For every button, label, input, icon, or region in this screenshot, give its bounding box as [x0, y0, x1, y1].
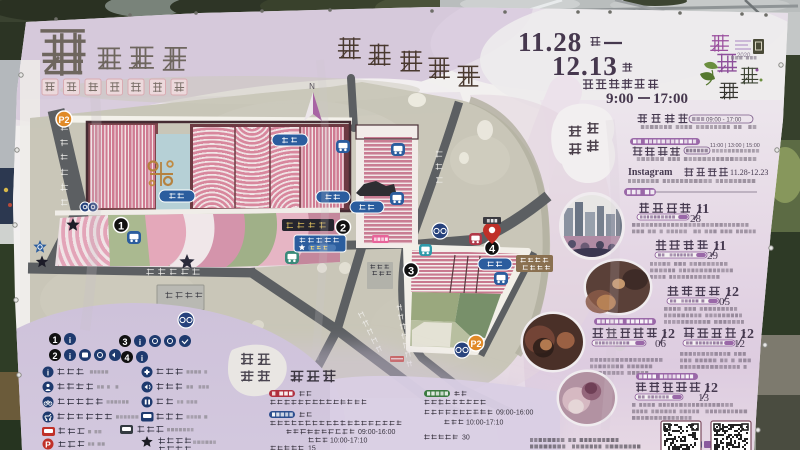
svg-text:3: 3: [408, 266, 414, 278]
svg-text:i: i: [69, 336, 71, 345]
svg-text:29: 29: [707, 250, 719, 262]
svg-text:N: N: [309, 82, 315, 91]
svg-text:05: 05: [719, 296, 731, 308]
svg-text:06: 06: [655, 338, 667, 350]
svg-text:13: 13: [698, 392, 710, 404]
svg-text:3: 3: [122, 337, 127, 347]
svg-text:09:00-16:00: 09:00-16:00: [358, 429, 395, 436]
svg-text:i: i: [141, 354, 143, 363]
svg-text:09:00 - 17:00: 09:00 - 17:00: [706, 118, 742, 124]
svg-text:10:00-17:10: 10:00-17:10: [330, 438, 367, 445]
svg-text:9:00: 9:00: [606, 91, 634, 107]
svg-text:i: i: [47, 369, 49, 378]
svg-text:1: 1: [52, 335, 57, 345]
svg-text:i: i: [139, 338, 141, 347]
svg-text:11.28-12.23: 11.28-12.23: [730, 168, 768, 177]
svg-text:17:00: 17:00: [653, 91, 688, 107]
svg-text:Instagram: Instagram: [628, 167, 673, 178]
svg-text:15: 15: [308, 446, 316, 450]
svg-text:4: 4: [124, 353, 129, 363]
svg-text:10:00-17:10: 10:00-17:10: [466, 420, 503, 427]
svg-text:09:00-16:00: 09:00-16:00: [496, 410, 533, 417]
svg-text:4: 4: [489, 244, 496, 256]
svg-text:2: 2: [340, 223, 346, 235]
svg-text:P: P: [45, 440, 51, 450]
svg-text:1: 1: [118, 221, 124, 233]
svg-text:11:00 | 13:00 | 15:00: 11:00 | 13:00 | 15:00: [710, 143, 760, 149]
svg-text:12: 12: [734, 338, 745, 350]
svg-text:30: 30: [462, 435, 470, 442]
svg-text:12.13: 12.13: [552, 51, 618, 81]
svg-text:i: i: [69, 352, 71, 361]
svg-text:2: 2: [52, 351, 57, 361]
svg-text:P2: P2: [470, 339, 481, 349]
svg-text:P2: P2: [58, 115, 69, 125]
